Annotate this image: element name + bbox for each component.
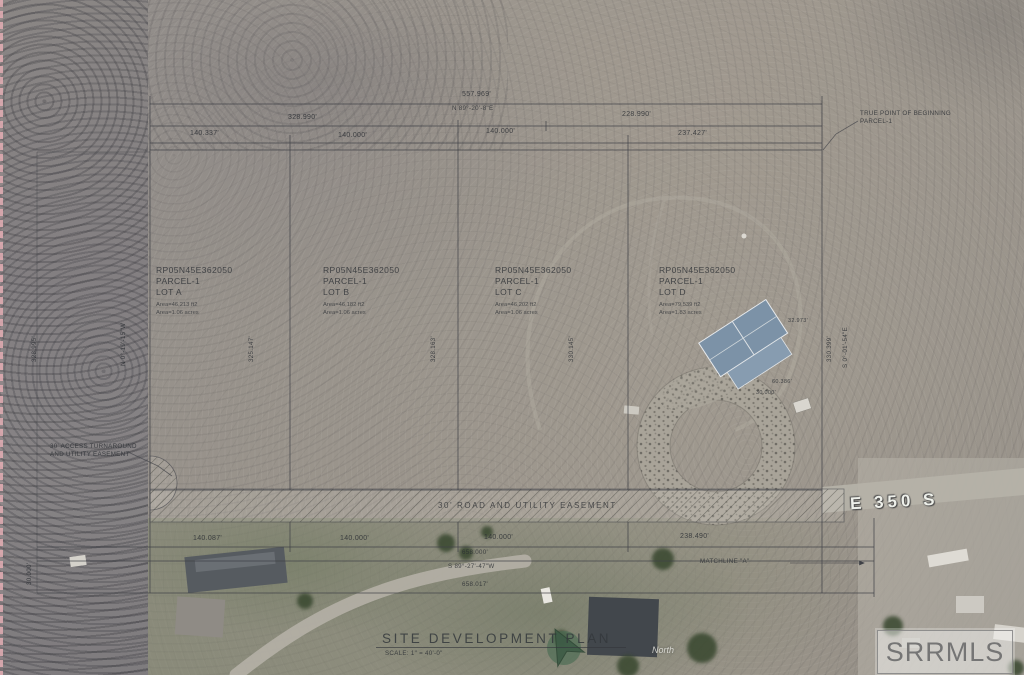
dim-bot-lot-b: 140.000': [340, 535, 369, 542]
lot-b-label: RP05N45E362050 PARCEL-1 LOT B Area=46,18…: [323, 265, 463, 318]
lot-c-label: RP05N45E362050 PARCEL-1 LOT C Area=46,20…: [495, 265, 635, 318]
dim-top-lot-a: 140.337': [190, 130, 219, 137]
matchline-label: MATCHLINE "A": [700, 558, 749, 565]
dim-building-2: 60.386': [772, 379, 792, 385]
plan-linework-layer: [0, 0, 1024, 675]
dim-bot-bearing: S 89°-27'-47"W: [448, 563, 495, 570]
dim-top-lot-c: 140.000': [486, 128, 515, 135]
dim-side-cd: 330.145': [568, 336, 575, 362]
dim-side-bc: 328.163': [430, 336, 437, 362]
true-point-note: TRUE POINT OF BEGINNING PARCEL-1: [860, 110, 951, 126]
dim-building-3: 30.000': [756, 390, 776, 396]
dim-side-left-bearing: N 0°-19'-15"W: [120, 323, 127, 366]
north-arrow-icon: [541, 623, 587, 669]
dim-top-right-half: 228.990': [622, 111, 651, 118]
dim-top-total: 557.969': [462, 91, 491, 98]
dim-side-ab: 325.147': [248, 336, 255, 362]
dim-building-1: 32.973': [788, 318, 808, 324]
dim-easement-width: 30.000': [26, 563, 33, 585]
dim-side-right-bearing: S 0°-01'-54"E: [842, 327, 849, 368]
dim-bot-lot-a: 140.087': [193, 535, 222, 542]
dim-side-left: 328.995': [31, 336, 38, 362]
turnaround-easement-note: 30' ACCESS TURNAROUND AND UTILITY EASEME…: [50, 443, 137, 459]
north-label: North: [652, 645, 674, 655]
mls-watermark: SRRMLS: [877, 630, 1013, 674]
plan-title-underline: [376, 647, 626, 648]
site-development-plan-image: 557.969' N 89°-20'-8"E 328.990' 228.990'…: [0, 0, 1024, 675]
dim-bot-lot-c: 140.000': [484, 534, 513, 541]
plan-title: SITE DEVELOPMENT PLAN: [382, 631, 611, 646]
dim-top-lot-b: 140.000': [338, 132, 367, 139]
dim-top-bearing: N 89°-20'-8"E: [452, 105, 493, 112]
dim-top-left-half: 328.990': [288, 114, 317, 121]
plan-scale: SCALE: 1" = 40'-0": [385, 650, 443, 657]
dim-top-lot-d: 237.427': [678, 130, 707, 137]
parcel-boundary: [150, 150, 822, 490]
dim-bot-lot-d: 238.490': [680, 533, 709, 540]
dim-bot-total-2: 658.017': [462, 581, 488, 588]
lot-d-label: RP05N45E362050 PARCEL-1 LOT D Area=79,53…: [659, 265, 799, 318]
lot-a-label: RP05N45E362050 PARCEL-1 LOT A Area=46,21…: [156, 265, 296, 318]
dim-bot-total-1: 658.000': [462, 549, 488, 556]
road-easement-label: 30' ROAD AND UTILITY EASEMENT: [438, 501, 617, 510]
dim-side-right: 330.399': [826, 336, 833, 362]
